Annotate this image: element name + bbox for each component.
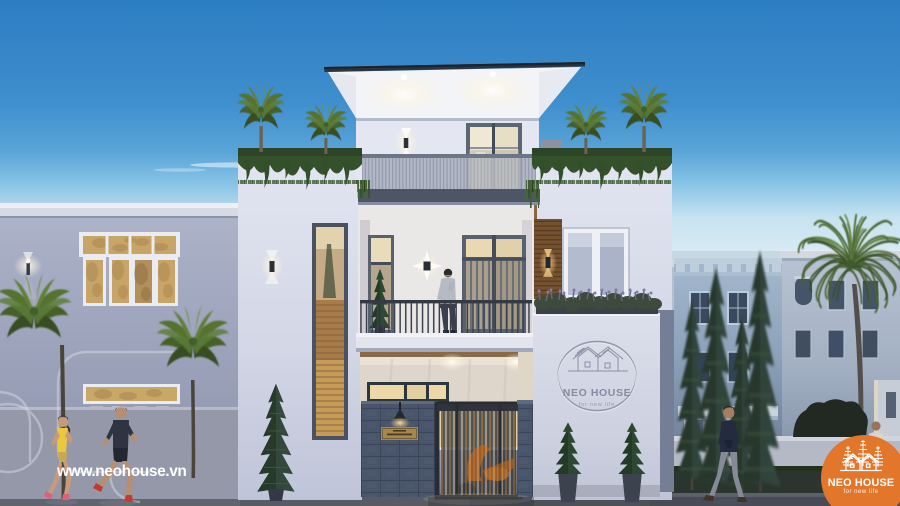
svg-text:NEO HOUSE: NEO HOUSE [563, 387, 631, 399]
svg-text:www.neohouse.vn: www.neohouse.vn [56, 463, 187, 480]
svg-text:NEO HOUSE: NEO HOUSE [828, 477, 895, 489]
svg-text:for new life: for new life [579, 402, 615, 408]
svg-text:for new life: for new life [843, 489, 878, 495]
